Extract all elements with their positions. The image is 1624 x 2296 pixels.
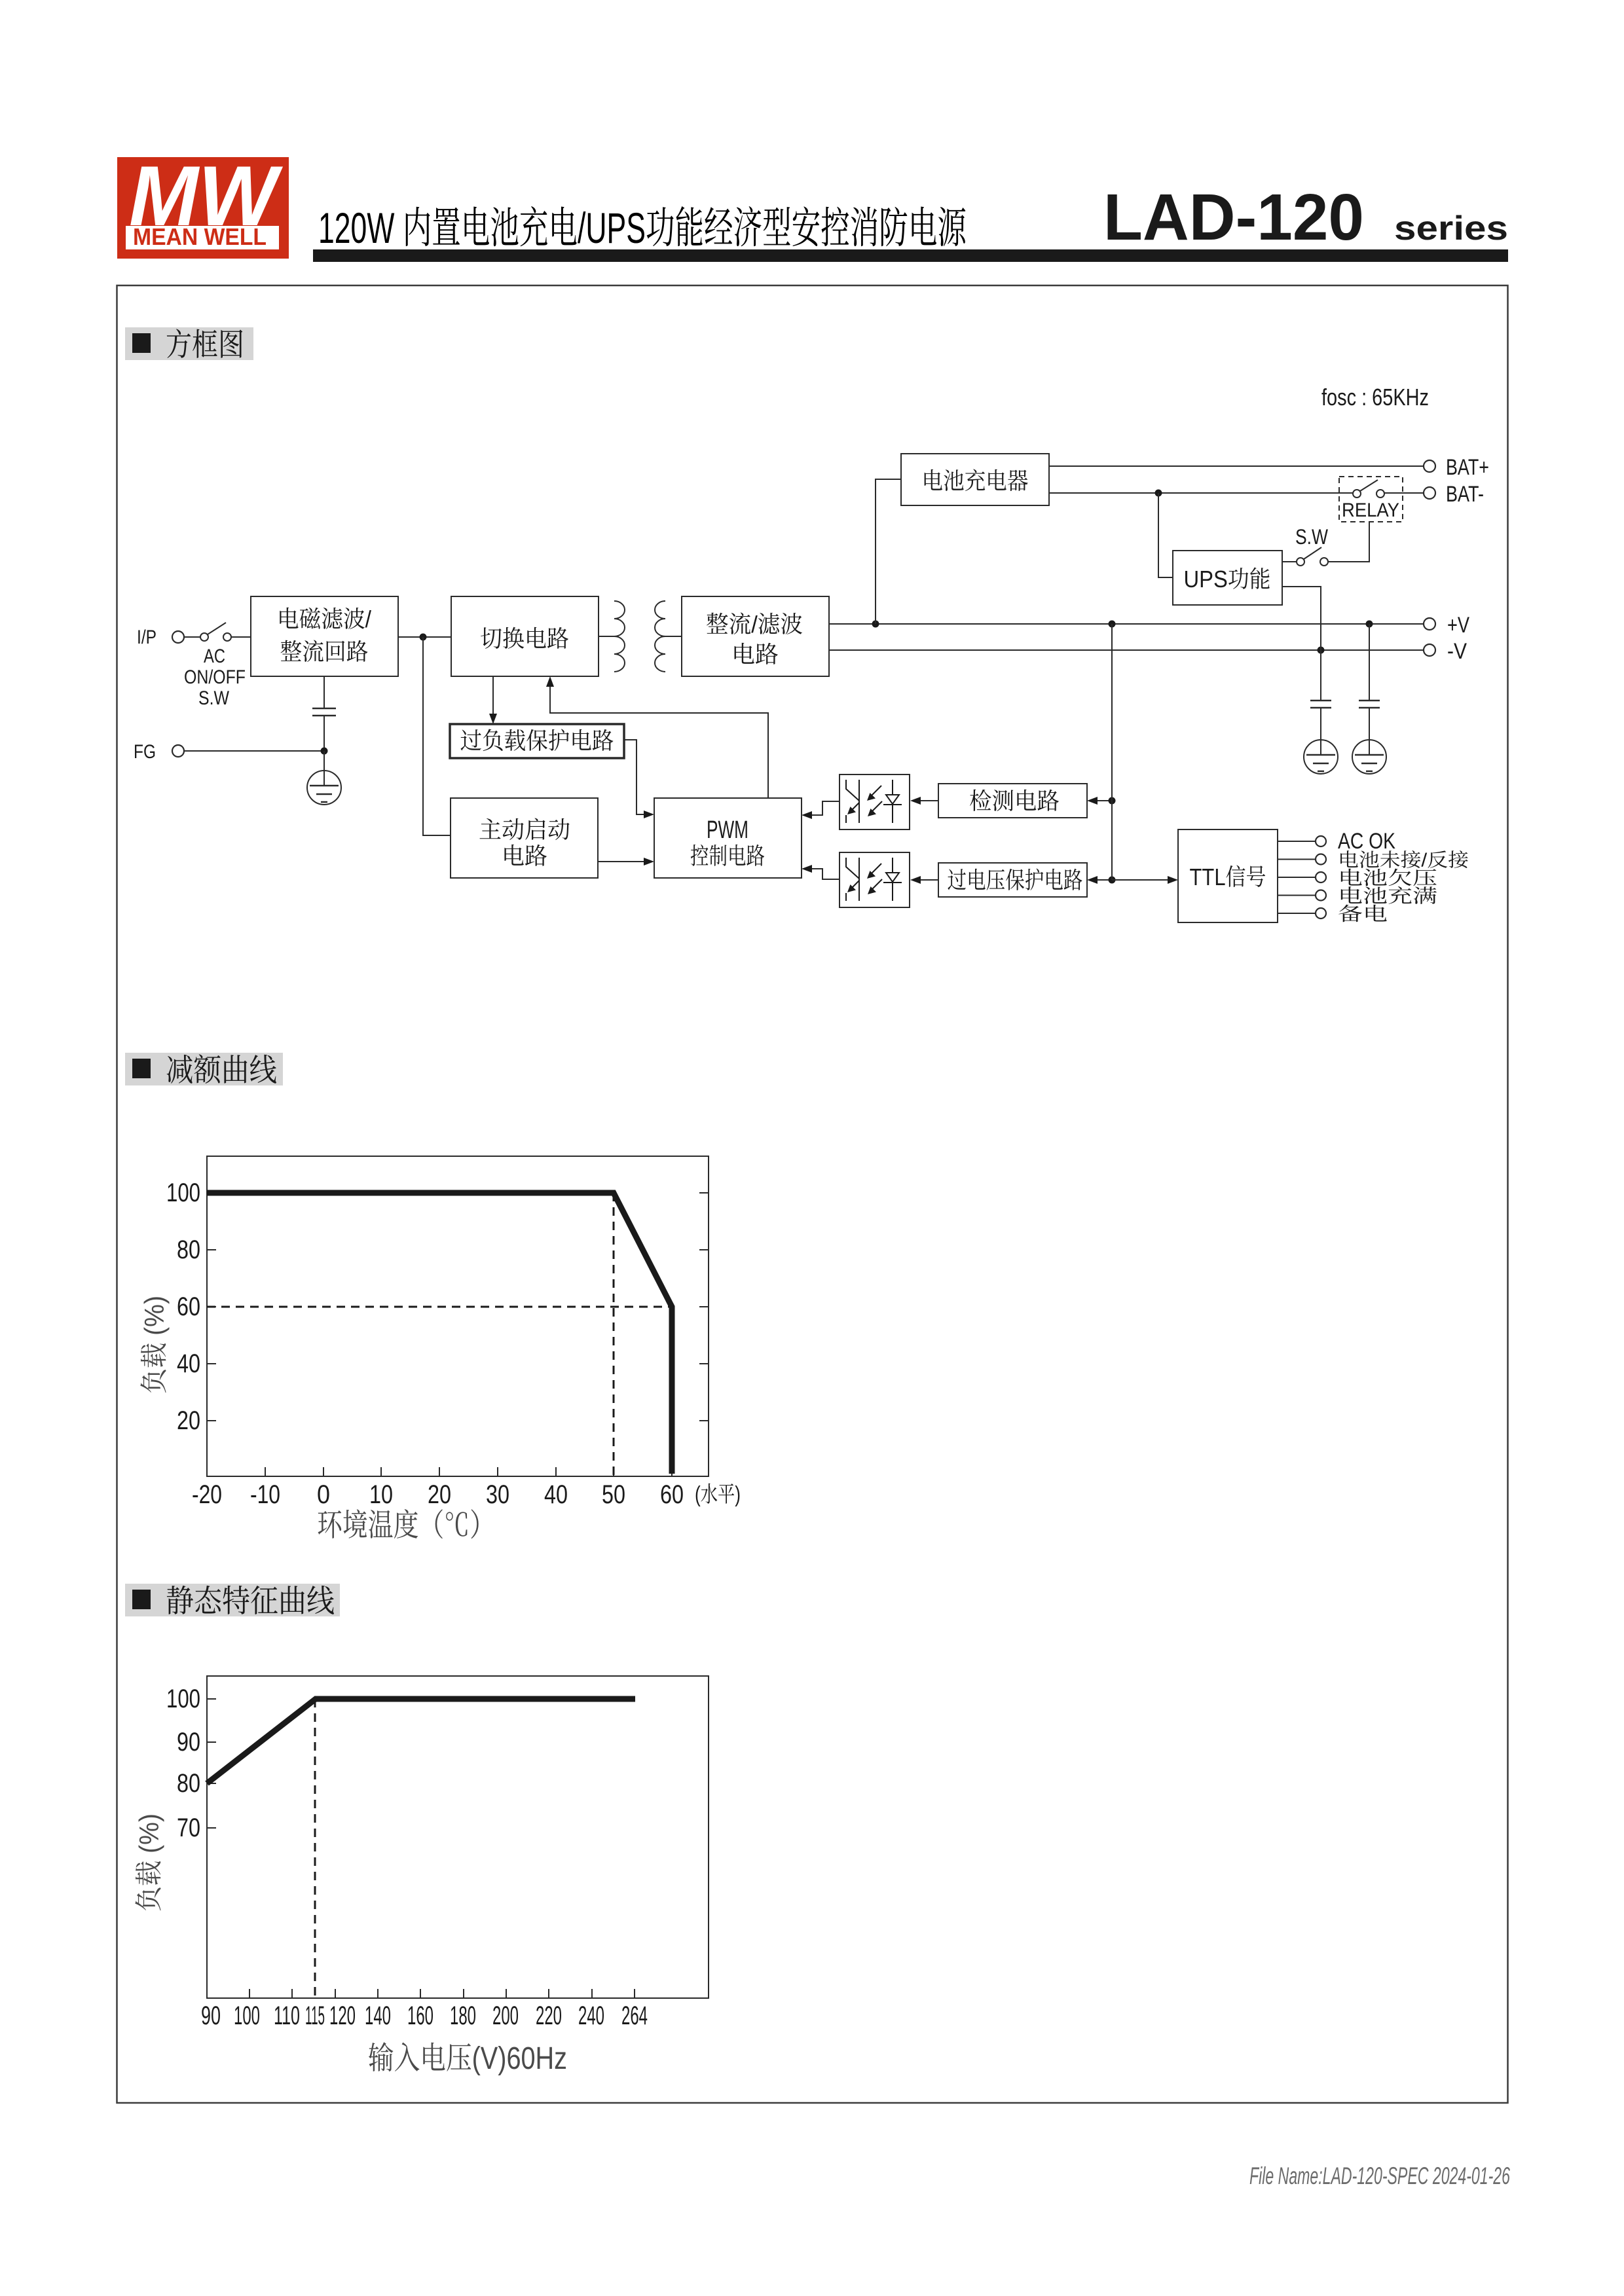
svg-text:240: 240: [578, 2001, 604, 2030]
svg-text:负载 (%): 负载 (%): [134, 1813, 164, 1912]
svg-text:160: 160: [407, 2001, 434, 2030]
svg-text:80: 80: [177, 1769, 200, 1798]
svg-text:UPS功能: UPS功能: [1184, 566, 1271, 592]
svg-text:100: 100: [166, 1178, 200, 1207]
svg-text:40: 40: [544, 1480, 568, 1509]
svg-text:+V: +V: [1447, 613, 1469, 638]
svg-text:负载 (%): 负载 (%): [139, 1296, 170, 1394]
svg-text:ON/OFF: ON/OFF: [184, 666, 246, 688]
svg-text:过负载保护电路: 过负载保护电路: [460, 727, 614, 754]
svg-text:AC: AC: [204, 646, 225, 667]
svg-text:FG: FG: [134, 741, 156, 763]
svg-text:90: 90: [201, 2001, 221, 2030]
svg-text:60: 60: [660, 1480, 684, 1509]
svg-text:100: 100: [166, 1685, 200, 1713]
svg-text:120: 120: [329, 2001, 356, 2030]
svg-text:10: 10: [369, 1480, 393, 1509]
svg-text:-10: -10: [250, 1480, 280, 1509]
svg-text:主动启动: 主动启动: [479, 816, 570, 843]
svg-text:BAT-: BAT-: [1446, 482, 1484, 507]
svg-text:S.W: S.W: [198, 687, 230, 709]
svg-text:TTL信号: TTL信号: [1190, 864, 1266, 890]
svg-text:切换电路: 切换电路: [480, 625, 569, 652]
svg-text:0: 0: [317, 1480, 330, 1509]
svg-text:检测电路: 检测电路: [969, 788, 1060, 814]
svg-text:fosc : 65KHz: fosc : 65KHz: [1321, 384, 1429, 410]
svg-text:120W 内置电池充电/UPS功能经济型安控消防电源: 120W 内置电池充电/UPS功能经济型安控消防电源: [318, 204, 967, 252]
svg-text:整流回路: 整流回路: [280, 638, 369, 665]
svg-text:180: 180: [450, 2001, 476, 2030]
svg-text:200: 200: [492, 2001, 519, 2030]
svg-text:S.W: S.W: [1295, 525, 1329, 549]
svg-text:MEAN WELL: MEAN WELL: [133, 223, 267, 250]
svg-text:I/P: I/P: [137, 627, 157, 648]
svg-text:-20: -20: [192, 1480, 222, 1509]
svg-text:110: 110: [274, 2001, 300, 2030]
svg-text:20: 20: [428, 1480, 451, 1509]
svg-text:80: 80: [177, 1235, 200, 1264]
svg-text:BAT+: BAT+: [1446, 455, 1489, 480]
svg-text:series: series: [1394, 210, 1508, 247]
svg-text:静态特征曲线: 静态特征曲线: [166, 1584, 335, 1619]
svg-text:264: 264: [621, 2001, 648, 2030]
svg-text:输入电压(V)60Hz: 输入电压(V)60Hz: [368, 2041, 567, 2076]
svg-text:电池充电器: 电池充电器: [922, 467, 1029, 494]
svg-text:File Name:LAD-120-SPEC 2024-0: File Name:LAD-120-SPEC 2024-01-26: [1249, 2162, 1510, 2189]
svg-text:60: 60: [177, 1292, 200, 1321]
svg-text:减额曲线: 减额曲线: [166, 1053, 277, 1088]
svg-text:LAD-120: LAD-120: [1103, 181, 1364, 254]
svg-text:140: 140: [365, 2001, 391, 2030]
svg-text:方框图: 方框图: [166, 328, 244, 363]
svg-text:RELAY: RELAY: [1342, 500, 1399, 521]
svg-text:40: 40: [177, 1349, 200, 1378]
svg-text:电路: 电路: [731, 641, 779, 668]
svg-text:-V: -V: [1447, 639, 1467, 664]
svg-text:90: 90: [177, 1728, 200, 1757]
svg-text:电路: 电路: [502, 843, 547, 869]
svg-text:控制电路: 控制电路: [690, 843, 765, 869]
svg-text:PWM: PWM: [707, 816, 748, 844]
svg-text:50: 50: [602, 1480, 625, 1509]
svg-text:30: 30: [486, 1480, 509, 1509]
svg-text:电磁滤波/: 电磁滤波/: [277, 606, 371, 632]
svg-text:220: 220: [536, 2001, 562, 2030]
svg-text:100: 100: [234, 2001, 260, 2030]
svg-text:115: 115: [305, 2001, 325, 2030]
svg-text:备电: 备电: [1338, 904, 1388, 925]
svg-text:整流/滤波: 整流/滤波: [706, 611, 803, 638]
svg-text:(水平): (水平): [695, 1482, 741, 1507]
svg-text:环境温度（℃）: 环境温度（℃）: [317, 1508, 495, 1543]
svg-text:70: 70: [177, 1813, 200, 1842]
svg-text:过电压保护电路: 过电压保护电路: [948, 867, 1083, 894]
svg-text:20: 20: [177, 1406, 200, 1435]
